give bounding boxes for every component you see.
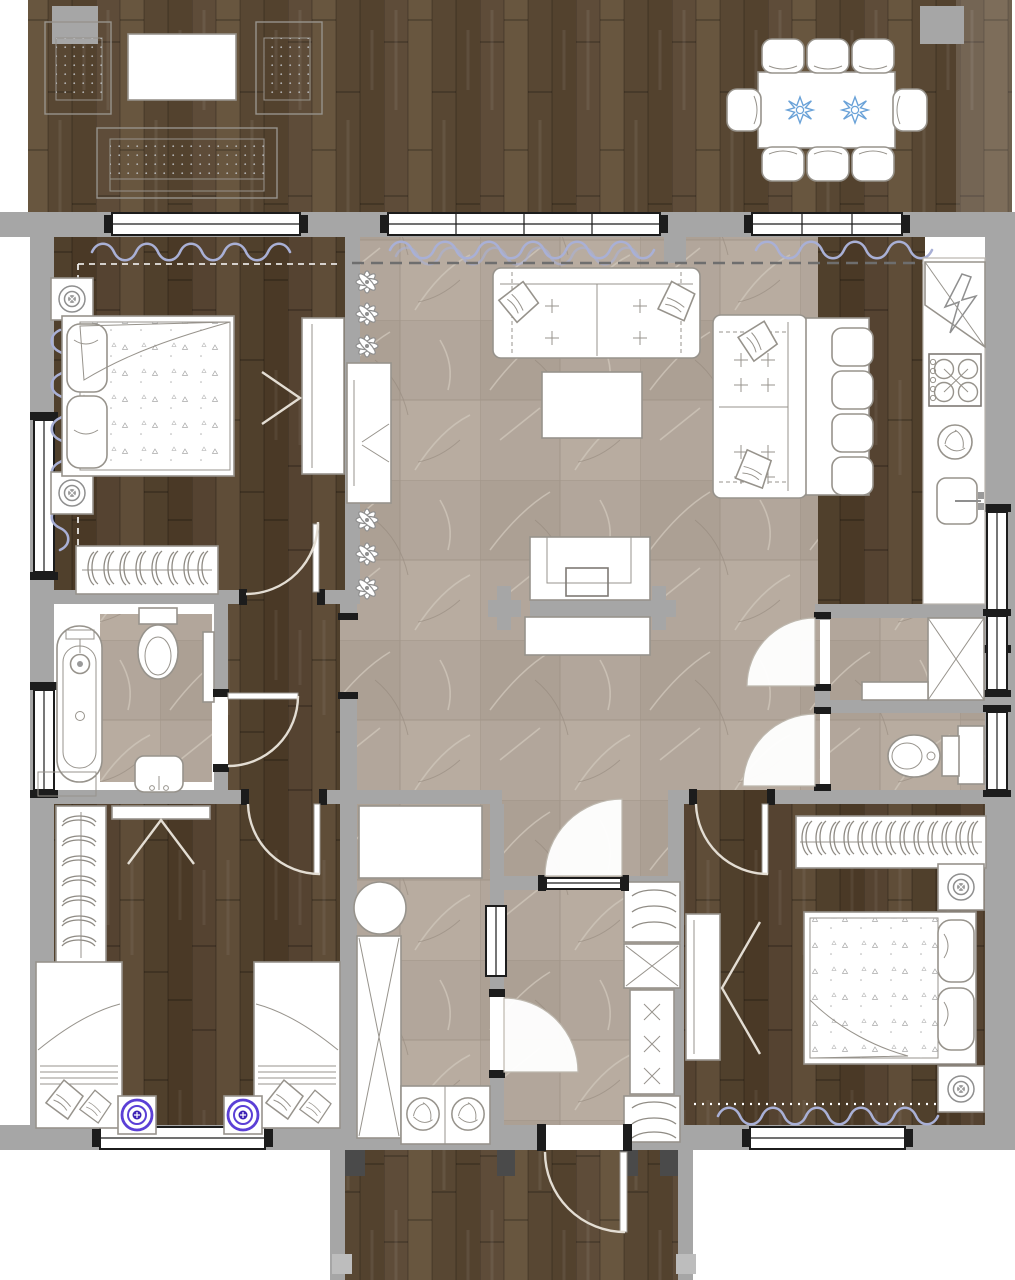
hanger-closet (56, 806, 106, 964)
clothes-rack (76, 546, 218, 594)
sink-icon (937, 478, 984, 524)
porch-post-2 (497, 1150, 515, 1176)
media-wall-bar (530, 600, 652, 617)
nightstand (51, 472, 93, 514)
nightstand (51, 278, 93, 320)
toilet (138, 608, 178, 679)
opening-corridor-hall (338, 613, 358, 699)
entry-hall (624, 882, 680, 1142)
coat-rack-top (624, 882, 680, 942)
nightstand (938, 1066, 984, 1112)
nightstand (118, 1096, 156, 1134)
corridor-floor (228, 604, 345, 804)
window-bedroom-second-bottom (742, 1127, 913, 1149)
laundry-basket (354, 882, 406, 934)
wall-utility-hall-b (490, 1072, 504, 1125)
double-bed (804, 912, 976, 1064)
bathtub (57, 626, 102, 782)
dishwasher-icon (938, 425, 972, 459)
floor-plan-canvas (0, 0, 1015, 1280)
terrace-column-right (920, 6, 964, 44)
wc-cabinet (958, 726, 984, 784)
window-bedroom-master-top (104, 213, 308, 235)
ironing-cabinet (357, 936, 401, 1138)
glazed-niche-utility-hall (486, 906, 506, 976)
nightstand (938, 864, 984, 910)
sofa-large (493, 268, 700, 358)
table-lamp-icon (59, 286, 85, 312)
double-bed (62, 316, 234, 476)
nightstand (224, 1096, 262, 1134)
terrace-floor-light-strip (956, 0, 1012, 214)
table-lamp-icon (948, 1076, 974, 1102)
storage-box (928, 618, 984, 700)
storage-x-box (624, 944, 680, 988)
window-storage-right (983, 609, 1011, 697)
purple-lamp-icon (228, 1100, 258, 1130)
table-lamp-icon (59, 480, 85, 506)
porch-post-4 (660, 1150, 678, 1176)
washer-drum-icon (452, 1098, 484, 1130)
purple-lamp-icon (122, 1100, 152, 1130)
single-bed-left (36, 962, 122, 1128)
wall-bed2-top-b (768, 790, 1015, 804)
window-dining-top (744, 213, 910, 235)
media-wall-post-left-h (488, 600, 521, 617)
coat-rack-bottom (624, 1096, 680, 1142)
glazed-door-hall-living (546, 878, 621, 889)
table-lamp-icon (948, 874, 974, 900)
floor-plan (0, 0, 1015, 1280)
single-bed-right (254, 962, 340, 1128)
washing-machines (401, 1086, 490, 1144)
washer-drum-icon (407, 1098, 439, 1130)
kitchen-run (923, 258, 985, 604)
utility-counter (359, 806, 482, 878)
open-hanger-closet (796, 816, 986, 868)
media-wall-post-right-h (643, 600, 676, 617)
outdoor-dining-table (758, 72, 895, 148)
storage-shelf (862, 682, 928, 700)
media-wall (525, 537, 650, 655)
shoe-shelf (630, 990, 674, 1094)
bath-shelf (203, 632, 214, 702)
window-wc-right (983, 705, 1011, 797)
lounge-side-table (128, 34, 236, 100)
console-panel (347, 363, 391, 503)
porch-post-light-right (676, 1254, 696, 1274)
wall-utility-top (345, 790, 502, 804)
wall-bathroom-a (214, 604, 228, 696)
stove-icon (929, 354, 981, 406)
window-bathroom-left (30, 682, 58, 798)
washbasin (135, 756, 183, 792)
window-living-slider (380, 213, 668, 235)
sofa-small (713, 315, 807, 498)
wall-stub-top (664, 237, 686, 263)
porch-post-light-left (332, 1254, 352, 1274)
coffee-table (542, 372, 642, 438)
porch-post-1 (345, 1150, 365, 1176)
toilet (888, 735, 959, 777)
